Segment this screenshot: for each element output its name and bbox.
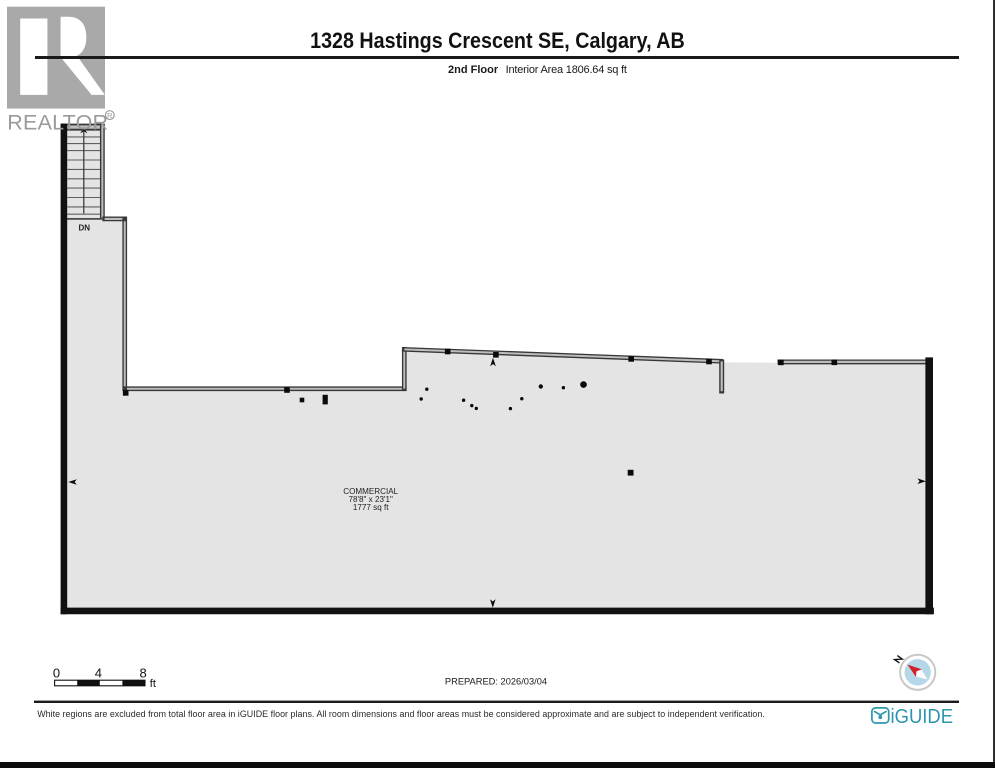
svg-text:4: 4 [95, 666, 102, 681]
svg-text:DN: DN [79, 224, 91, 233]
svg-text:iGUIDE: iGUIDE [891, 705, 954, 728]
svg-text:8: 8 [139, 666, 146, 681]
svg-text:0: 0 [53, 666, 60, 681]
svg-text:REALTOR: REALTOR [7, 110, 108, 134]
svg-text:PREPARED: 2026/03/04: PREPARED: 2026/03/04 [445, 676, 547, 686]
svg-text:1777 sq ft: 1777 sq ft [353, 503, 389, 512]
svg-text:R: R [107, 111, 113, 120]
svg-text:ft: ft [150, 678, 156, 690]
